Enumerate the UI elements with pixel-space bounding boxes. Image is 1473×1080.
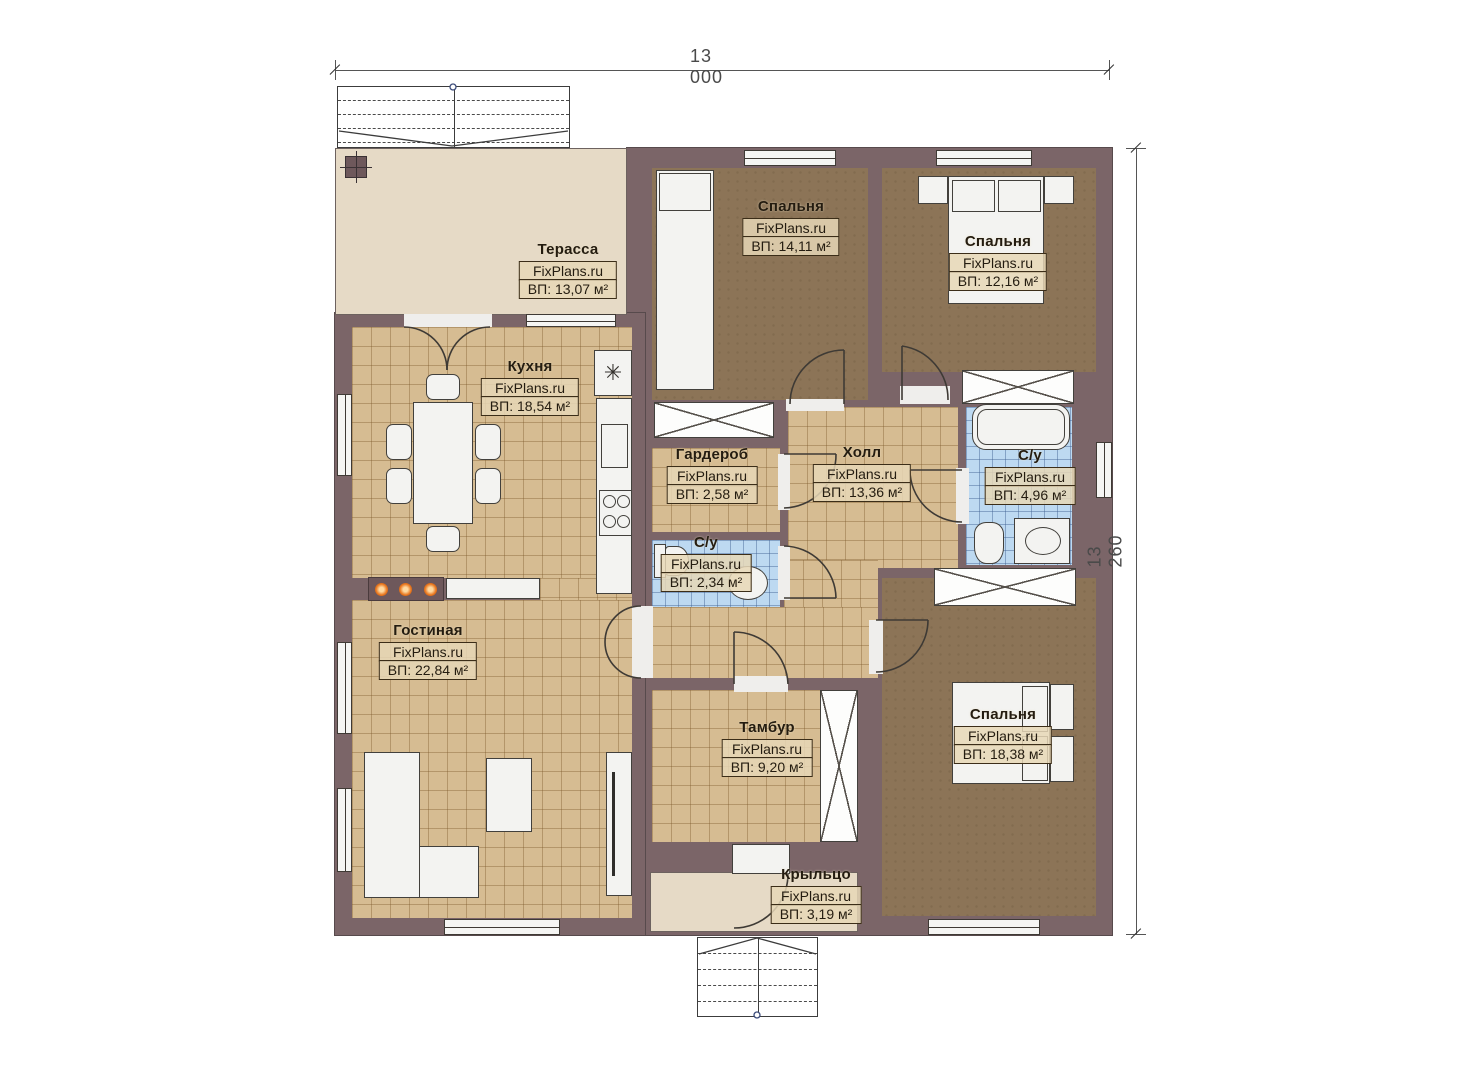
- brand-watermark: FixPlans.ru: [722, 739, 813, 759]
- nightstand: [1044, 176, 1074, 204]
- window: [936, 150, 1032, 166]
- room-name: Тамбур: [722, 719, 813, 736]
- tv-stand: [606, 752, 632, 896]
- window: [337, 788, 352, 872]
- nightstand: [1050, 736, 1074, 782]
- sofa-chaise: [419, 846, 479, 898]
- door-opening-bedroom-2: [900, 386, 950, 404]
- hall-corridor-link: [784, 560, 878, 612]
- kitchen-sink: [601, 424, 628, 468]
- pillow: [659, 173, 711, 211]
- room-name: Холл: [813, 444, 911, 461]
- pillow: [998, 180, 1041, 212]
- room-label-bedroom-2: Спальня FixPlans.ru ВП: 12,16 м²: [949, 233, 1047, 291]
- room-name: Терасса: [519, 241, 617, 258]
- room-name: Спальня: [742, 198, 839, 215]
- door-opening-terrace: [404, 314, 492, 327]
- wardrobe-hatch: [962, 370, 1074, 404]
- room-label-living-room: Гостиная FixPlans.ru ВП: 22,84 м²: [379, 622, 477, 680]
- room-label-kitchen: Кухня FixPlans.ru ВП: 18,54 м²: [481, 358, 579, 416]
- brand-watermark: FixPlans.ru: [954, 726, 1052, 746]
- window: [444, 919, 560, 935]
- brand-watermark: FixPlans.ru: [771, 886, 862, 906]
- room-label-bedroom-3: Спальня FixPlans.ru ВП: 18,38 м²: [954, 706, 1052, 764]
- window: [928, 919, 1040, 935]
- nightstand: [918, 176, 948, 204]
- chair: [386, 424, 412, 460]
- room-area: ВП: 2,34 м²: [661, 572, 752, 592]
- porch-stairs: [697, 937, 818, 1017]
- door-opening-bathroom-2: [778, 546, 790, 600]
- room-area: ВП: 18,38 м²: [954, 744, 1052, 764]
- stove: [599, 490, 632, 536]
- fridge-icon: ✳: [594, 350, 632, 396]
- wardrobe-hatch: [820, 690, 858, 842]
- coffee-table: [486, 758, 532, 832]
- window: [337, 642, 352, 734]
- kitchen-cabinet: [446, 578, 540, 599]
- dimension-right-label: 13 260: [1085, 534, 1127, 567]
- pillow: [952, 180, 995, 212]
- dimension-top-label: 13 000: [690, 46, 723, 88]
- room-area: ВП: 12,16 м²: [949, 271, 1047, 291]
- nightstand: [1050, 684, 1074, 730]
- room-area: ВП: 13,07 м²: [519, 279, 617, 299]
- room-area: ВП: 9,20 м²: [722, 757, 813, 777]
- sink-counter: [1014, 518, 1070, 564]
- room-name: С/у: [985, 447, 1076, 464]
- chair: [426, 374, 460, 400]
- terrace-stairs: [337, 86, 570, 148]
- window: [744, 150, 836, 166]
- window: [1096, 442, 1112, 498]
- room-label-hall: Холл FixPlans.ru ВП: 13,36 м²: [813, 444, 911, 502]
- brand-watermark: FixPlans.ru: [742, 218, 839, 238]
- room-label-vestibule: Тамбур FixPlans.ru ВП: 9,20 м²: [722, 719, 813, 777]
- dining-table: [413, 402, 473, 524]
- room-name: Гардероб: [667, 446, 758, 463]
- room-label-bedroom-1: Спальня FixPlans.ru ВП: 14,11 м²: [742, 198, 839, 256]
- door-opening-living: [632, 606, 653, 678]
- room-label-bathroom-2: С/у FixPlans.ru ВП: 2,34 м²: [661, 534, 752, 592]
- terrace-column: [345, 156, 367, 178]
- room-name: С/у: [661, 534, 752, 551]
- sofa: [364, 752, 420, 898]
- window: [337, 394, 352, 476]
- brand-watermark: FixPlans.ru: [813, 464, 911, 484]
- room-name: Спальня: [949, 233, 1047, 250]
- brand-watermark: FixPlans.ru: [519, 261, 617, 281]
- brand-watermark: FixPlans.ru: [661, 554, 752, 574]
- tv: [612, 772, 615, 876]
- window: [526, 314, 616, 327]
- room-label-wardrobe: Гардероб FixPlans.ru ВП: 2,58 м²: [667, 446, 758, 504]
- room-area: ВП: 3,19 м²: [771, 904, 862, 924]
- door-opening-bedroom-3: [869, 620, 883, 674]
- chair: [386, 468, 412, 504]
- door-opening-wardrobe: [778, 454, 790, 510]
- room-name: Спальня: [954, 706, 1052, 723]
- room-name: Крыльцо: [771, 866, 862, 883]
- room-area: ВП: 14,11 м²: [742, 236, 839, 256]
- brand-watermark: FixPlans.ru: [379, 642, 477, 662]
- brand-watermark: FixPlans.ru: [481, 378, 579, 398]
- door-opening-vestibule: [734, 676, 788, 692]
- chair: [426, 526, 460, 552]
- room-name: Гостиная: [379, 622, 477, 639]
- room-name: Кухня: [481, 358, 579, 375]
- room-area: ВП: 13,36 м²: [813, 482, 911, 502]
- room-area: ВП: 4,96 м²: [985, 485, 1076, 505]
- chair: [475, 468, 501, 504]
- room-label-porch: Крыльцо FixPlans.ru ВП: 3,19 м²: [771, 866, 862, 924]
- floor-plan: 13 000 13 260: [0, 0, 1473, 1080]
- chair: [475, 424, 501, 460]
- corridor-floor: [652, 607, 878, 678]
- room-label-bathroom-1: С/у FixPlans.ru ВП: 4,96 м²: [985, 447, 1076, 505]
- room-area: ВП: 2,58 м²: [667, 484, 758, 504]
- room-label-terrace: Терасса FixPlans.ru ВП: 13,07 м²: [519, 241, 617, 299]
- wardrobe-hatch: [934, 568, 1076, 606]
- door-opening-bedroom-1: [786, 399, 844, 411]
- toilet: [974, 522, 1004, 564]
- room-area: ВП: 18,54 м²: [481, 396, 579, 416]
- fireplace: [368, 577, 444, 601]
- room-area: ВП: 22,84 м²: [379, 660, 477, 680]
- brand-watermark: FixPlans.ru: [949, 253, 1047, 273]
- door-opening-bathroom-1: [956, 468, 969, 524]
- wardrobe-hatch: [654, 402, 774, 438]
- bathtub: [972, 404, 1070, 450]
- brand-watermark: FixPlans.ru: [985, 467, 1076, 487]
- brand-watermark: FixPlans.ru: [667, 466, 758, 486]
